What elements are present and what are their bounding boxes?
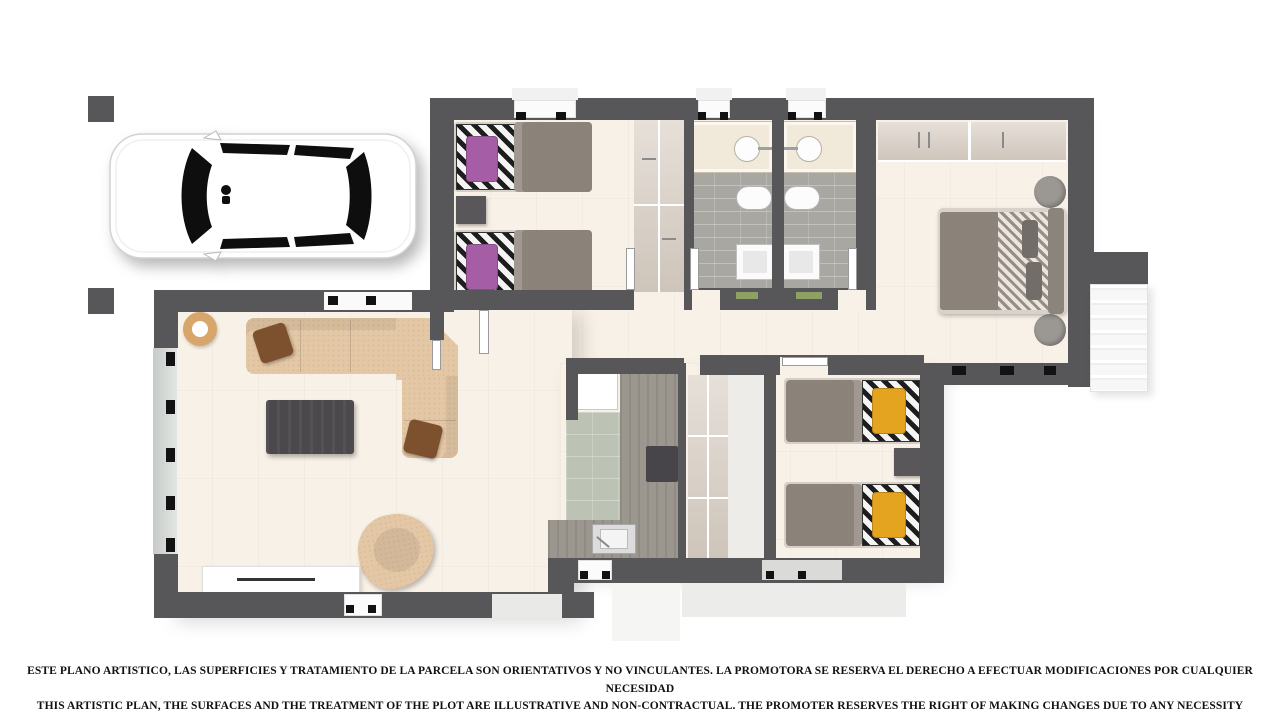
bathroom2-door xyxy=(848,248,857,290)
porch-step xyxy=(492,594,562,618)
wall-bath2-master xyxy=(856,118,876,310)
round-nightstand xyxy=(1034,314,1066,346)
bath-mat xyxy=(796,292,822,299)
wall-living-door-stub xyxy=(430,312,444,340)
tv xyxy=(237,578,315,581)
hall-closet xyxy=(688,375,728,558)
wall-living-west-lower xyxy=(154,554,178,618)
wall-kitchen-west xyxy=(566,358,578,420)
exterior-staircase xyxy=(1090,284,1148,392)
round-rug xyxy=(183,312,217,346)
nightstand xyxy=(456,196,486,224)
car-rear-window xyxy=(346,152,372,240)
duvet xyxy=(786,484,862,546)
duvet xyxy=(940,212,998,310)
round-nightstand xyxy=(1034,176,1066,208)
coffee-table xyxy=(266,400,354,454)
fridge xyxy=(574,372,618,410)
faucet xyxy=(758,147,772,150)
front-door xyxy=(479,310,489,354)
pillow xyxy=(1026,262,1042,300)
wall-bedroom2-east xyxy=(920,363,944,583)
nightstand xyxy=(894,448,922,476)
master-wardrobe xyxy=(878,122,1066,162)
corridor-floor xyxy=(728,375,764,558)
bath-mat xyxy=(736,292,758,299)
disclaimer-line-en: THIS ARTISTIC PLAN, THE SURFACES AND THE… xyxy=(0,698,1280,716)
bedroom1-door xyxy=(626,248,635,290)
round-basin xyxy=(734,136,760,162)
bedroom2-door xyxy=(782,357,828,366)
shower-tray xyxy=(782,244,820,280)
purple-pillow xyxy=(466,244,498,290)
wall-bedroom1-south xyxy=(452,290,634,310)
kitchen-sink xyxy=(592,524,636,554)
round-basin xyxy=(796,136,822,162)
entry-porch xyxy=(682,583,906,617)
toilet xyxy=(784,186,820,210)
purple-pillow xyxy=(466,136,498,182)
disclaimer-line-es: ESTE PLANO ARTISTICO, LAS SUPERFICIES Y … xyxy=(0,663,1280,698)
duvet xyxy=(514,122,592,192)
faucet xyxy=(784,147,798,150)
disclaimer: ESTE PLANO ARTISTICO, LAS SUPERFICIES Y … xyxy=(0,663,1280,716)
wall-west-upper xyxy=(430,98,454,312)
wall-kitchen-north xyxy=(566,358,684,374)
headboard xyxy=(1048,208,1064,314)
bathroom1-door xyxy=(690,248,699,290)
cooktop xyxy=(646,446,678,482)
yellow-pillow xyxy=(872,492,906,538)
shower-tray xyxy=(736,244,774,280)
carport-pillar xyxy=(88,96,114,122)
entry-walkway xyxy=(612,583,680,641)
tv-console xyxy=(202,566,360,594)
wall-bath-divider xyxy=(772,118,784,310)
car-icon xyxy=(108,130,418,262)
floor-plan-page: ESTE PLANO ARTISTICO, LAS SUPERFICIES Y … xyxy=(0,0,1280,720)
yellow-pillow xyxy=(872,388,906,434)
toilet xyxy=(736,186,772,210)
pillow xyxy=(1022,220,1038,258)
living-room-door xyxy=(432,340,441,370)
bedroom1-wardrobe xyxy=(634,120,684,292)
carport-pillar xyxy=(88,288,114,314)
wall-stair-stub xyxy=(1090,252,1148,284)
wall-bedroom2-west xyxy=(764,375,776,560)
duvet xyxy=(786,380,862,442)
wall-kitchen-east xyxy=(678,363,686,558)
